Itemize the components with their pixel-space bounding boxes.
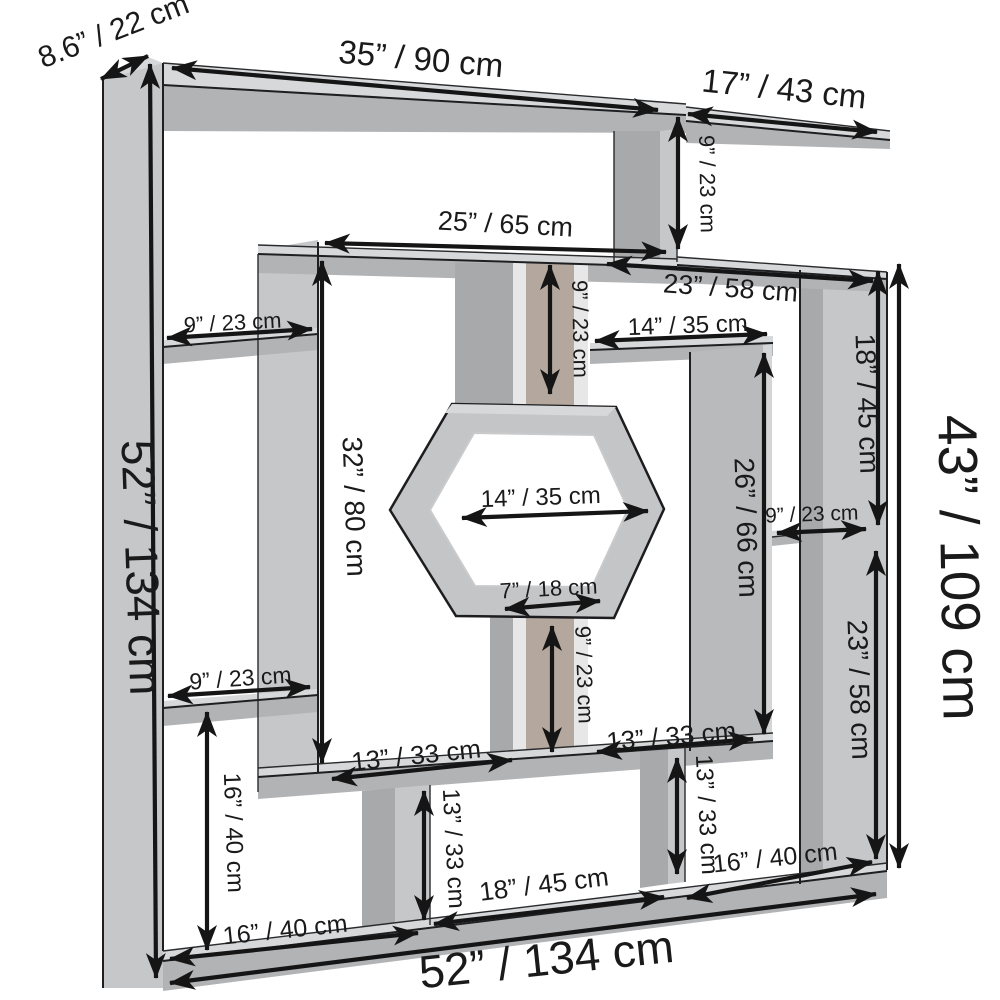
- dim-label-top-right-shelf-width: 17” / 43 cm: [700, 62, 868, 116]
- dim-label-inner-top-shelf-width: 25” / 65 cm: [437, 205, 573, 242]
- center-divider-lower-shadow-face: [490, 614, 513, 760]
- dim-label-top-right-drop-height: 9” / 23 cm: [694, 135, 721, 233]
- dim-label-inner-right-height: 26” / 66 cm: [729, 457, 765, 598]
- bottom-right-divider-side-face: [640, 748, 668, 888]
- bottom-center-divider-side-face: [362, 788, 395, 936]
- center-divider-upper-left-edge: [513, 263, 526, 406]
- dim-label-bottom-center-divider-height: 13” / 33 cm: [437, 788, 470, 909]
- dim-label-center-divider-lower-height: 9” / 23 cm: [570, 625, 598, 724]
- dim-label-hexagon-width: 14” / 35 cm: [480, 482, 601, 513]
- dim-label-center-divider-upper-height: 9” / 23 cm: [567, 280, 594, 378]
- center-divider-upper-shadow-face: [455, 263, 513, 405]
- dim-label-overall-height: 52” / 134 cm: [112, 439, 173, 696]
- dimension-diagram: 8.6” / 22 cm 35” / 90 cm 17” / 43 cm 9” …: [0, 0, 1000, 1000]
- dim-label-inner-left-height: 32” / 80 cm: [337, 436, 373, 577]
- dim-label-overall-right-height: 43” / 109 cm: [926, 414, 993, 721]
- top-connector-front-face: [660, 129, 677, 262]
- center-divider-lower-left-edge: [513, 613, 526, 758]
- dim-label-top-shelf-width: 35” / 90 cm: [337, 33, 505, 84]
- right-panel-side-face: [800, 267, 823, 884]
- dim-label-right-upper-height: 18” / 45 cm: [850, 333, 886, 474]
- dim-label-right-small-cubby-width: 9” / 23 cm: [765, 501, 859, 527]
- top-connector-side-face: [614, 131, 660, 262]
- dim-label-hexagon-bottom-width: 7” / 18 cm: [499, 573, 598, 603]
- dim-label-left-lower-height: 16” / 40 cm: [218, 772, 249, 893]
- diagram-canvas: 8.6” / 22 cm 35” / 90 cm 17” / 43 cm 9” …: [0, 0, 1000, 1000]
- dim-label-left-upper-cubby-width: 9” / 23 cm: [183, 307, 282, 337]
- dim-label-right-lower-height: 23” / 58 cm: [842, 619, 878, 760]
- dim-label-right-cubby-width: 14” / 35 cm: [627, 310, 748, 341]
